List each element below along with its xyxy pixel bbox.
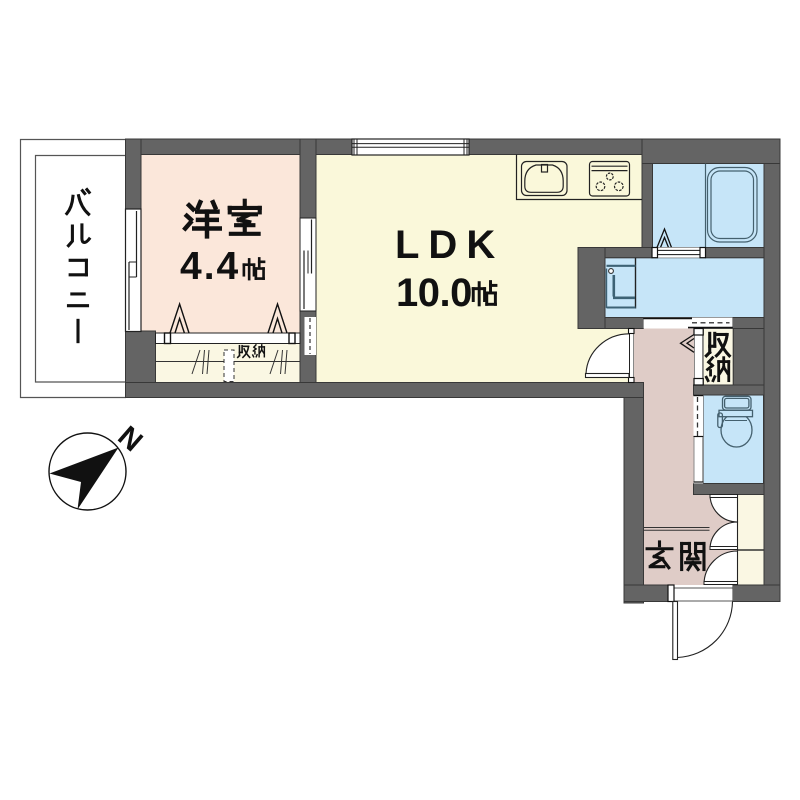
svg-text:10.0: 10.0 <box>396 271 472 315</box>
svg-text:4.4: 4.4 <box>180 245 240 288</box>
svg-text:LDK: LDK <box>395 223 504 267</box>
